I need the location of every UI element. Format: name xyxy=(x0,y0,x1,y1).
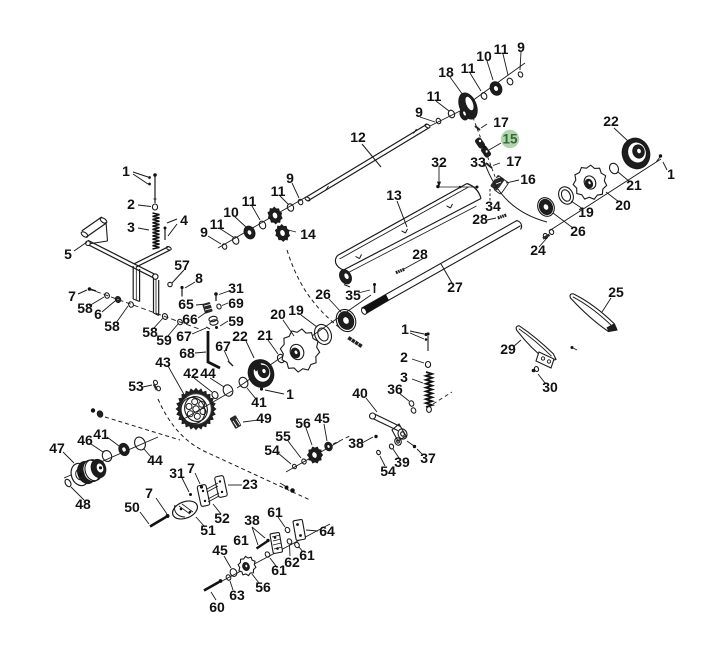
svg-text:8: 8 xyxy=(195,270,203,286)
svg-text:38: 38 xyxy=(244,512,260,528)
svg-text:42: 42 xyxy=(183,365,199,381)
svg-text:19: 19 xyxy=(288,302,304,318)
svg-text:13: 13 xyxy=(386,187,402,203)
svg-text:29: 29 xyxy=(500,341,516,357)
svg-text:49: 49 xyxy=(256,410,272,426)
svg-text:18: 18 xyxy=(438,64,454,80)
svg-text:3: 3 xyxy=(127,219,135,235)
svg-text:1: 1 xyxy=(286,386,294,402)
svg-text:1: 1 xyxy=(667,166,675,182)
svg-text:47: 47 xyxy=(49,440,65,456)
svg-text:26: 26 xyxy=(570,223,586,239)
svg-text:57: 57 xyxy=(174,257,190,273)
svg-text:9: 9 xyxy=(286,170,294,186)
svg-text:61: 61 xyxy=(271,562,287,578)
svg-text:40: 40 xyxy=(352,385,368,401)
svg-text:67: 67 xyxy=(215,338,231,354)
svg-text:60: 60 xyxy=(209,599,225,615)
svg-text:16: 16 xyxy=(520,171,536,187)
svg-text:7: 7 xyxy=(187,460,195,476)
svg-text:22: 22 xyxy=(232,328,248,344)
svg-text:45: 45 xyxy=(212,542,228,558)
svg-text:37: 37 xyxy=(420,450,436,466)
svg-text:58: 58 xyxy=(104,318,120,334)
svg-text:10: 10 xyxy=(223,204,239,220)
svg-text:11: 11 xyxy=(494,41,509,57)
svg-text:41: 41 xyxy=(251,394,267,410)
svg-text:51: 51 xyxy=(200,522,216,538)
svg-text:64: 64 xyxy=(319,523,335,539)
svg-text:31: 31 xyxy=(228,280,244,296)
svg-text:11: 11 xyxy=(461,60,476,76)
svg-text:33: 33 xyxy=(470,154,486,170)
svg-text:56: 56 xyxy=(255,579,271,595)
svg-text:22: 22 xyxy=(603,113,619,129)
svg-text:56: 56 xyxy=(295,415,311,431)
svg-text:19: 19 xyxy=(578,204,594,220)
svg-text:63: 63 xyxy=(229,587,245,603)
svg-text:59: 59 xyxy=(228,313,244,329)
svg-text:28: 28 xyxy=(472,211,488,227)
svg-text:15: 15 xyxy=(502,132,518,147)
svg-text:11: 11 xyxy=(242,193,257,209)
svg-text:36: 36 xyxy=(387,381,403,397)
svg-text:5: 5 xyxy=(64,246,72,262)
svg-text:7: 7 xyxy=(68,288,76,304)
svg-text:61: 61 xyxy=(233,532,249,548)
svg-text:21: 21 xyxy=(626,177,642,193)
svg-text:9: 9 xyxy=(517,39,525,55)
svg-text:26: 26 xyxy=(315,286,331,302)
svg-text:54: 54 xyxy=(264,442,280,458)
svg-text:61: 61 xyxy=(267,504,283,520)
svg-text:66: 66 xyxy=(182,311,198,327)
svg-text:65: 65 xyxy=(178,296,194,312)
svg-text:44: 44 xyxy=(200,365,216,381)
svg-text:43: 43 xyxy=(155,354,171,370)
svg-text:52: 52 xyxy=(214,510,230,526)
svg-text:32: 32 xyxy=(431,154,447,170)
svg-text:1: 1 xyxy=(401,321,409,337)
svg-text:23: 23 xyxy=(242,476,258,492)
svg-text:44: 44 xyxy=(147,452,163,468)
svg-text:50: 50 xyxy=(124,499,140,515)
svg-text:35: 35 xyxy=(345,287,361,303)
svg-text:17: 17 xyxy=(506,153,522,169)
svg-text:20: 20 xyxy=(270,306,286,322)
svg-text:39: 39 xyxy=(394,454,410,470)
svg-text:61: 61 xyxy=(299,547,315,563)
svg-text:24: 24 xyxy=(530,242,546,258)
svg-text:4: 4 xyxy=(180,212,188,228)
svg-text:46: 46 xyxy=(77,432,93,448)
svg-text:58: 58 xyxy=(77,300,93,316)
svg-text:48: 48 xyxy=(75,496,91,512)
svg-text:10: 10 xyxy=(476,48,492,64)
svg-text:7: 7 xyxy=(145,485,153,501)
svg-text:67: 67 xyxy=(176,328,192,344)
svg-text:2: 2 xyxy=(127,196,135,212)
svg-text:1: 1 xyxy=(122,163,130,179)
svg-text:9: 9 xyxy=(200,224,208,240)
svg-text:2: 2 xyxy=(400,349,408,365)
svg-text:6: 6 xyxy=(94,306,102,322)
svg-text:11: 11 xyxy=(271,183,286,199)
svg-text:68: 68 xyxy=(179,345,195,361)
svg-text:25: 25 xyxy=(608,284,624,300)
svg-text:27: 27 xyxy=(447,279,463,295)
svg-text:20: 20 xyxy=(615,197,631,213)
svg-text:59: 59 xyxy=(156,332,172,348)
svg-text:45: 45 xyxy=(314,410,330,426)
svg-text:38: 38 xyxy=(348,435,364,451)
svg-text:54: 54 xyxy=(380,463,396,479)
svg-text:53: 53 xyxy=(128,378,144,394)
svg-text:41: 41 xyxy=(93,426,109,442)
svg-text:21: 21 xyxy=(257,327,273,343)
svg-text:69: 69 xyxy=(228,295,244,311)
svg-text:9: 9 xyxy=(415,104,423,120)
svg-text:12: 12 xyxy=(350,129,366,145)
svg-text:17: 17 xyxy=(493,114,509,130)
svg-text:28: 28 xyxy=(412,246,428,262)
svg-text:11: 11 xyxy=(427,88,442,104)
svg-text:31: 31 xyxy=(169,465,185,481)
svg-text:30: 30 xyxy=(542,379,558,395)
svg-text:14: 14 xyxy=(300,226,316,242)
